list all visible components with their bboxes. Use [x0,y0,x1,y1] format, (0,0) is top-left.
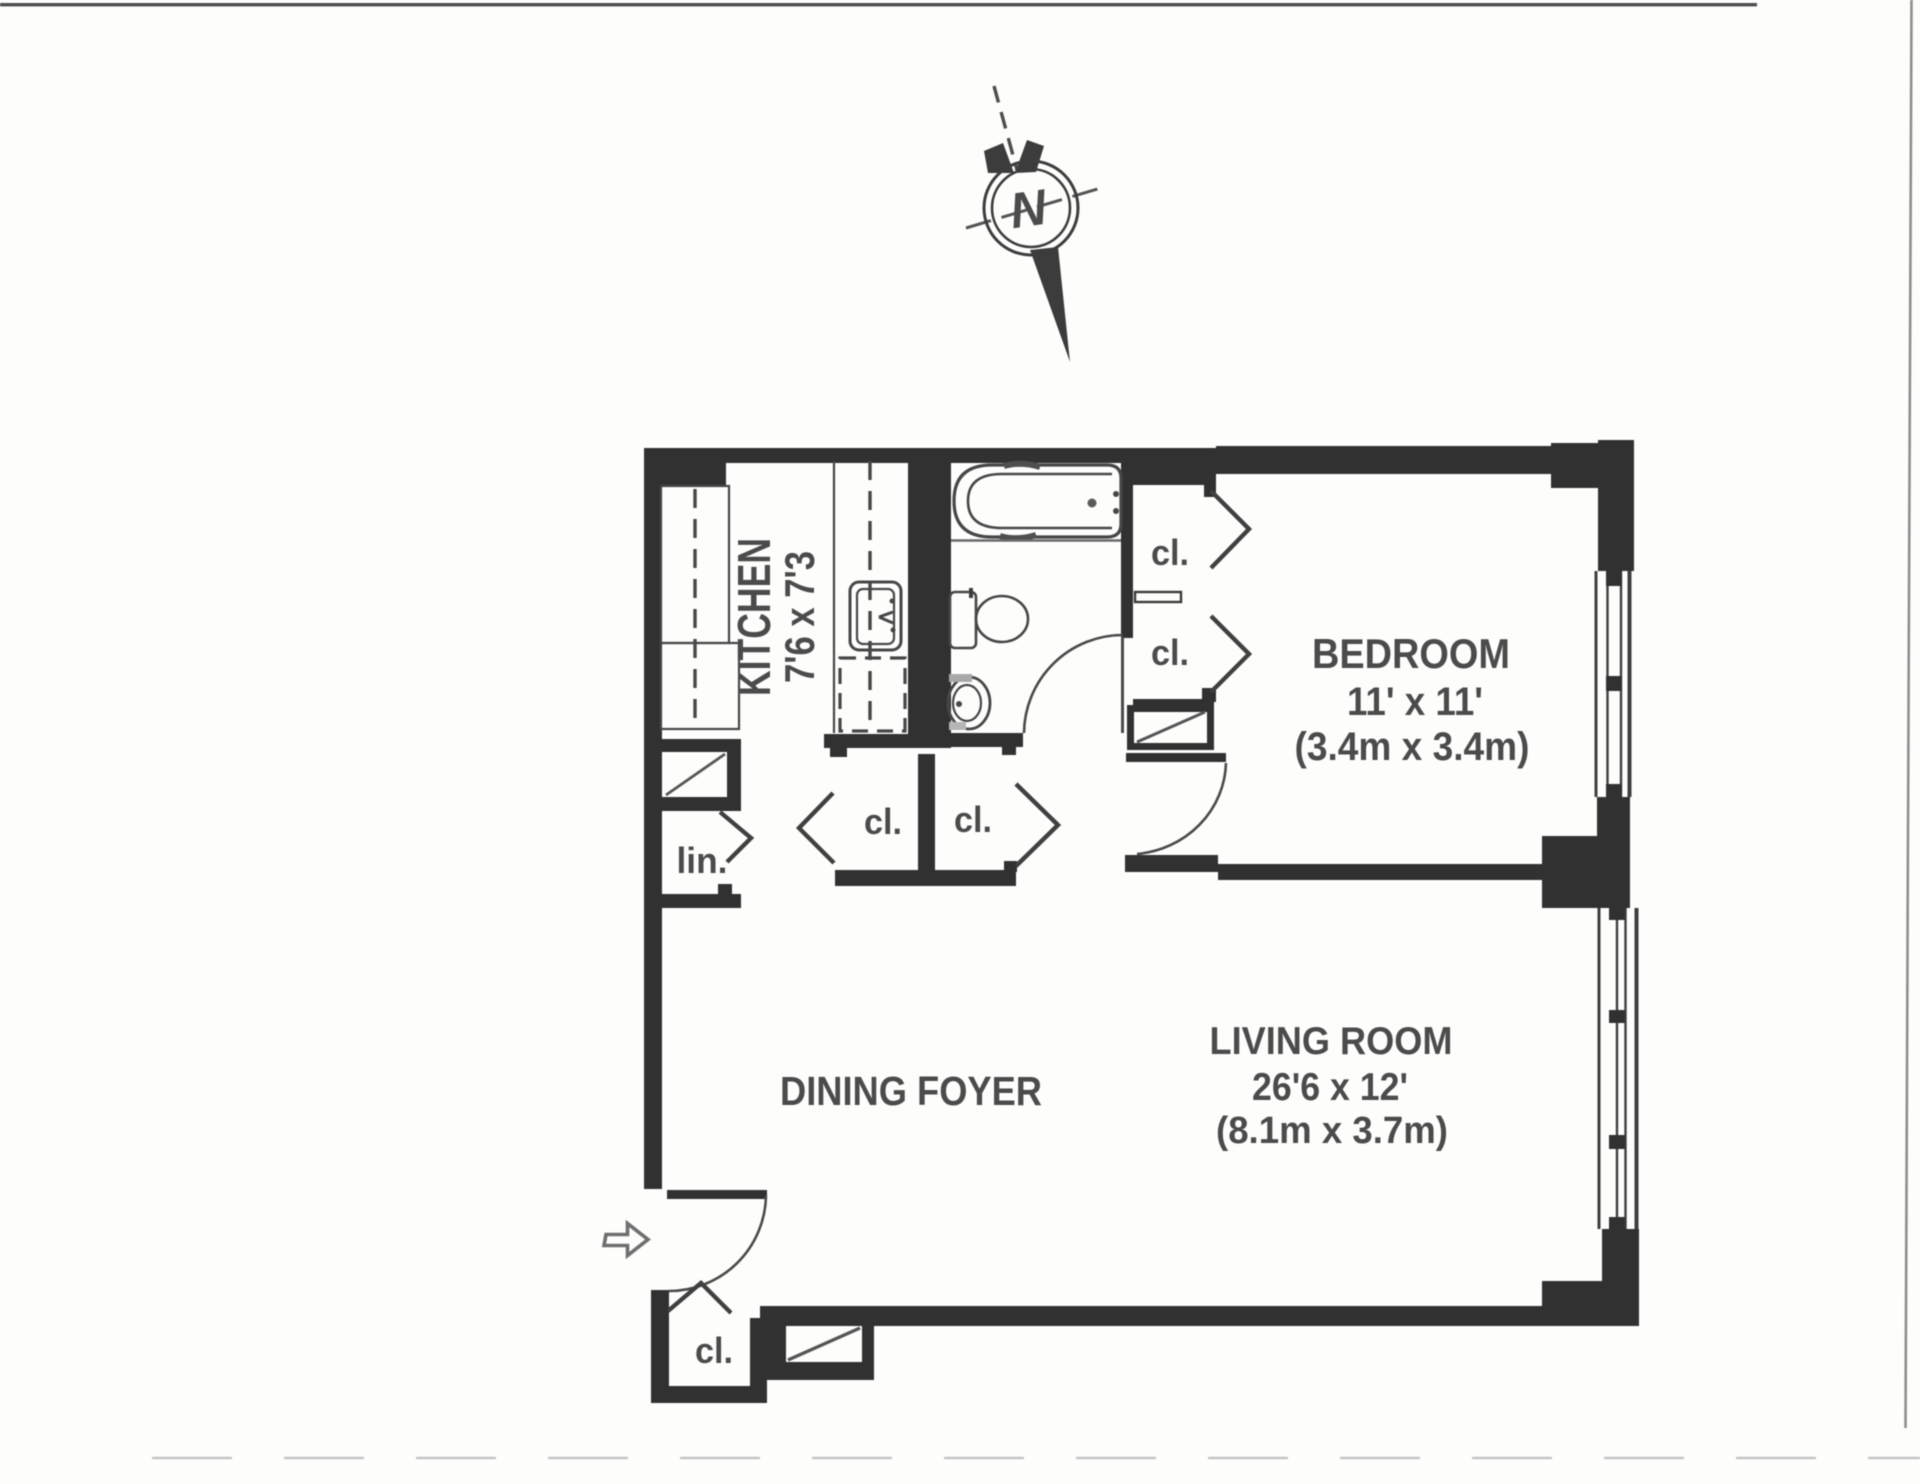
svg-text:LIVING ROOM: LIVING ROOM [1210,1020,1453,1063]
svg-text:lin.: lin. [677,840,728,881]
svg-text:KITCHEN: KITCHEN [728,538,780,696]
svg-text:DINING FOYER: DINING FOYER [780,1068,1042,1114]
svg-text:(3.4m x 3.4m): (3.4m x 3.4m) [1295,725,1530,769]
svg-text:11' x 11': 11' x 11' [1347,680,1483,724]
svg-text:cl.: cl. [1151,632,1189,673]
svg-text:cl.: cl. [1151,532,1189,573]
svg-text:(8.1m x 3.7m): (8.1m x 3.7m) [1216,1110,1448,1152]
svg-text:BEDROOM: BEDROOM [1312,630,1510,677]
svg-text:cl.: cl. [954,799,992,840]
svg-text:7'6 x 7'3: 7'6 x 7'3 [776,551,823,683]
svg-text:cl.: cl. [695,1330,733,1371]
svg-text:cl.: cl. [864,801,902,842]
svg-text:26'6 x 12': 26'6 x 12' [1252,1066,1408,1109]
